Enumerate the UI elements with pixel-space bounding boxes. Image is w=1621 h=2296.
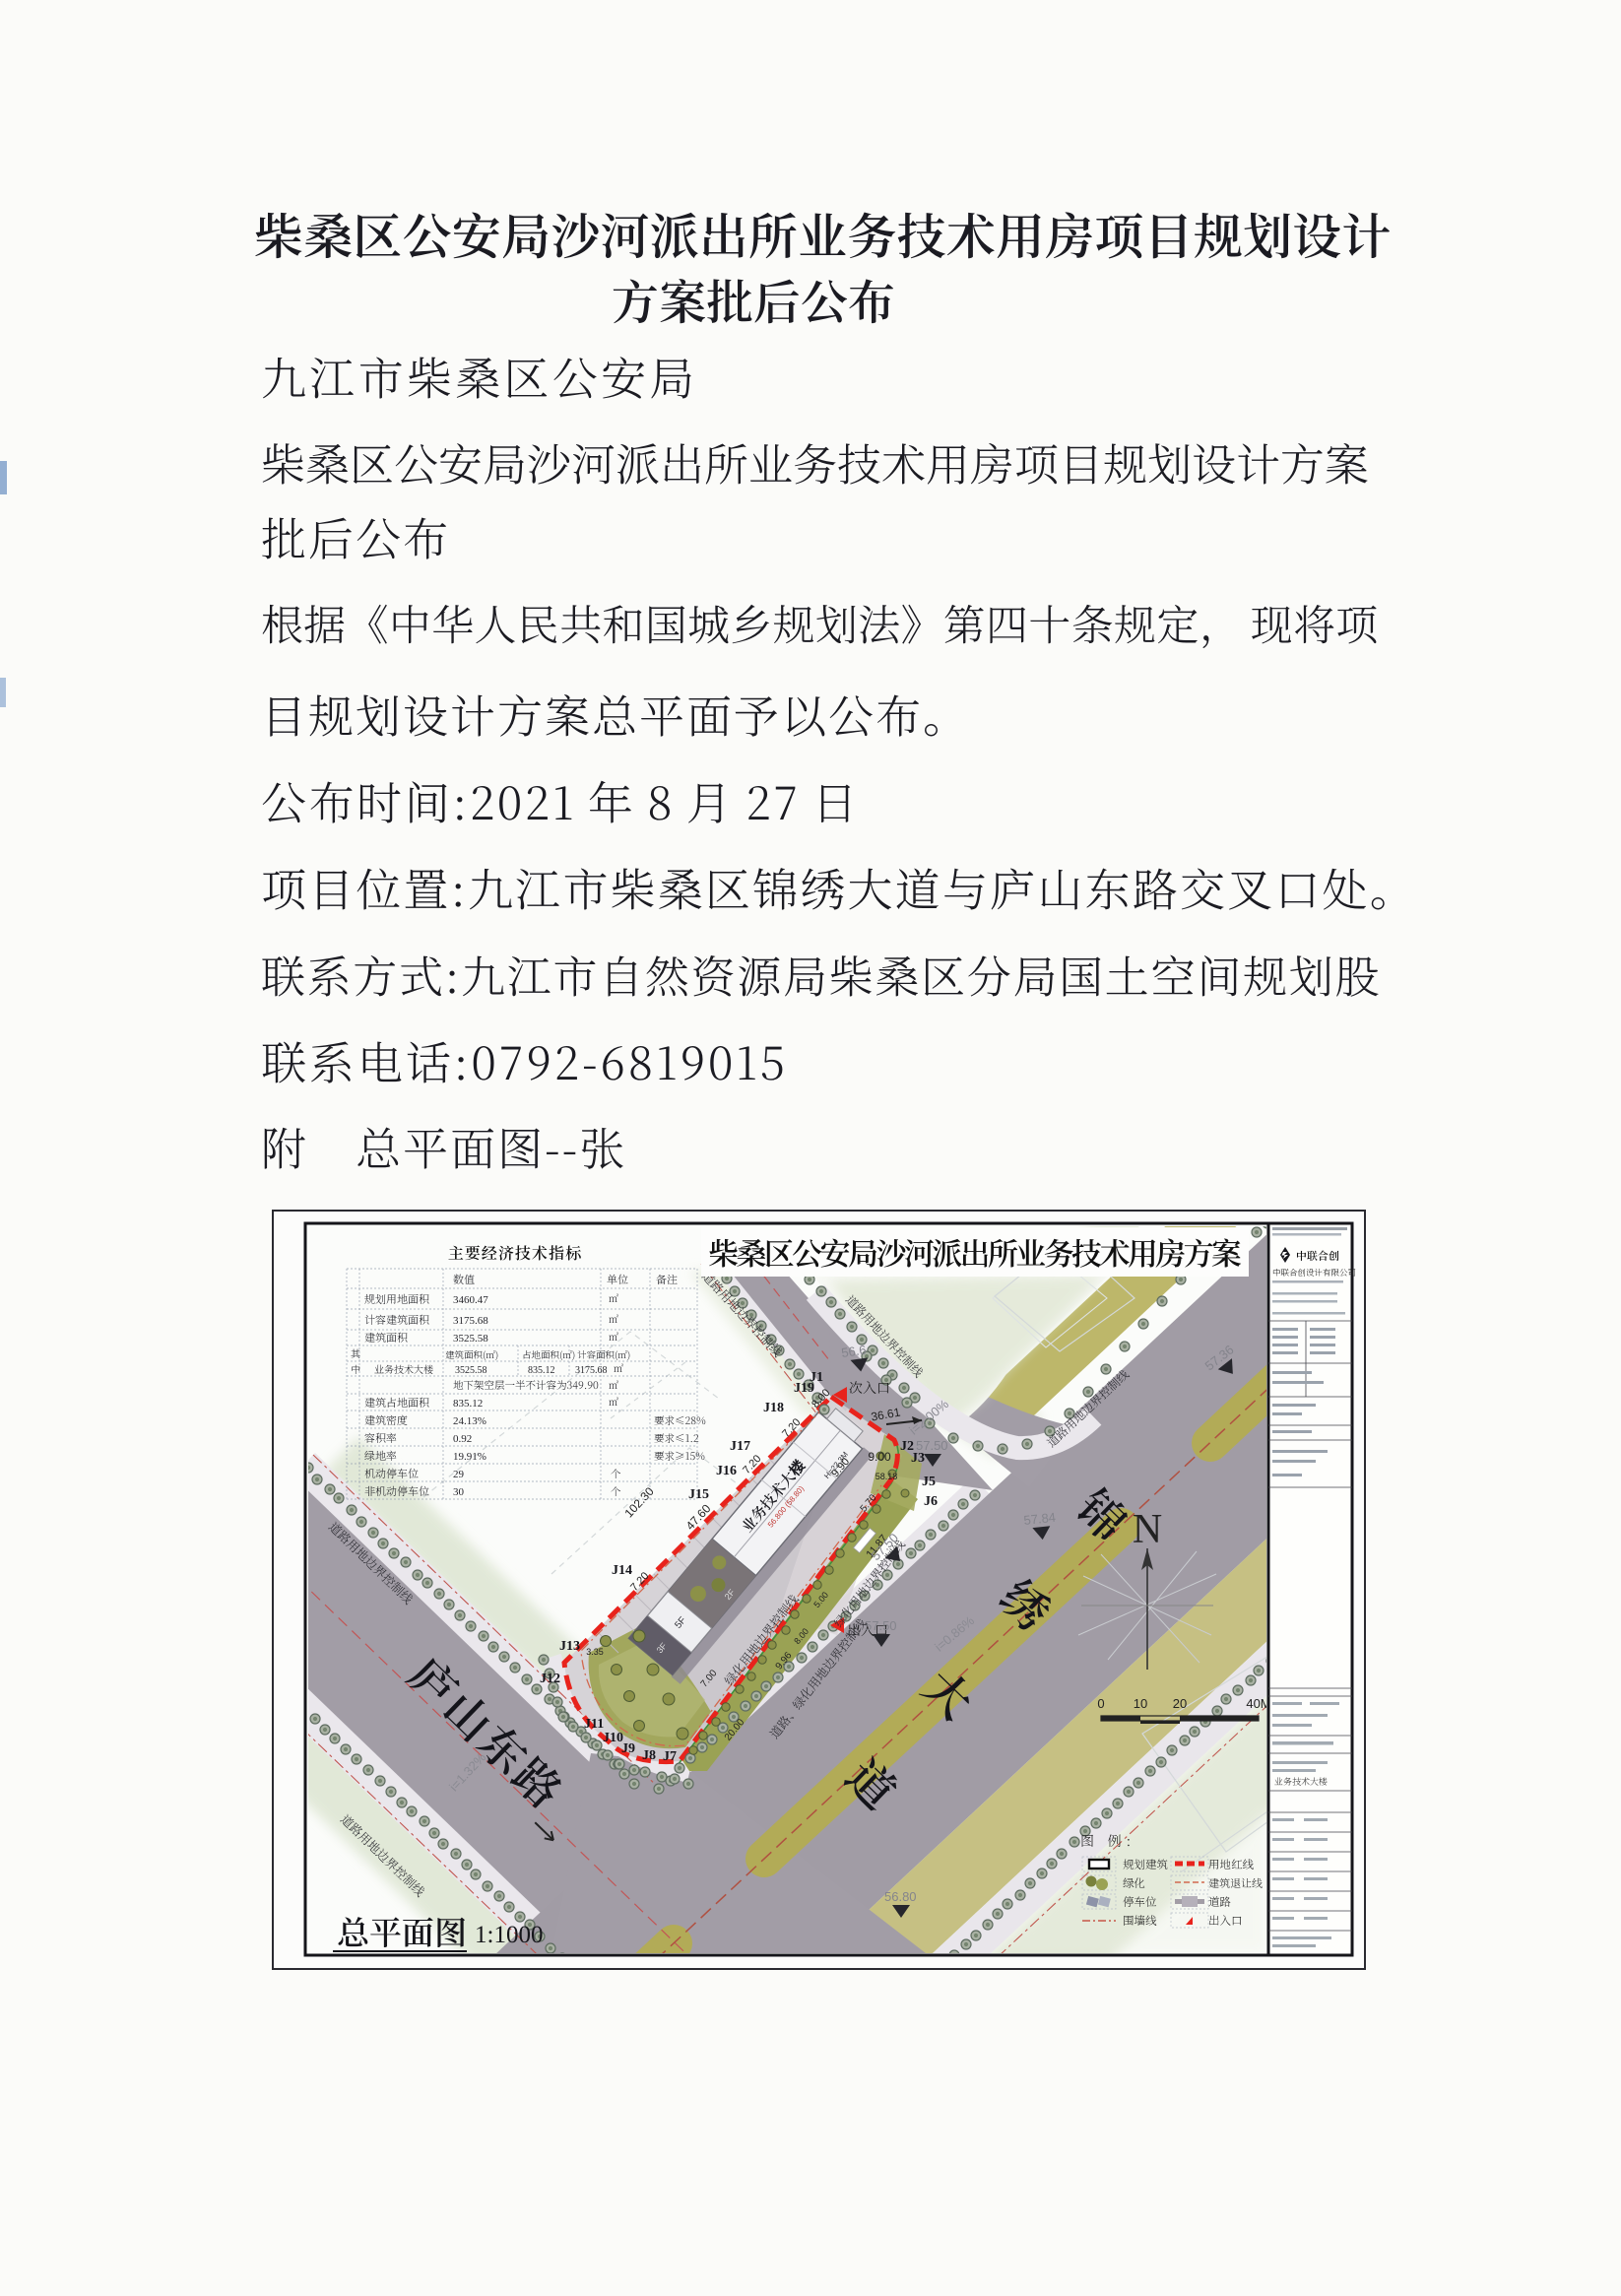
svg-text:24.13%: 24.13% — [453, 1415, 486, 1427]
svg-text:㎡: ㎡ — [609, 1290, 618, 1305]
svg-text:容积率: 容积率 — [364, 1430, 397, 1446]
svg-text:个: 个 — [611, 1467, 621, 1481]
svg-text:停车位: 停车位 — [1123, 1894, 1157, 1910]
svg-text:56.80: 56.80 — [884, 1889, 917, 1904]
svg-text:绿化: 绿化 — [1123, 1875, 1145, 1891]
svg-text:3.35: 3.35 — [586, 1647, 604, 1657]
svg-text:J7: J7 — [663, 1749, 677, 1764]
svg-text:0: 0 — [1097, 1696, 1104, 1711]
svg-text:20: 20 — [1173, 1696, 1187, 1711]
svg-text:道路: 道路 — [1208, 1894, 1231, 1910]
svg-text:围墙线: 围墙线 — [1123, 1913, 1157, 1929]
svg-text:计容建筑面积: 计容建筑面积 — [364, 1312, 429, 1328]
svg-text:规划建筑: 规划建筑 — [1123, 1857, 1168, 1872]
svg-text:数值: 数值 — [453, 1272, 475, 1287]
svg-text:J16: J16 — [716, 1464, 737, 1478]
svg-text:N: N — [1133, 1507, 1162, 1552]
svg-text:J12: J12 — [540, 1672, 560, 1686]
svg-text:J15: J15 — [688, 1487, 709, 1502]
svg-text:占地面积(㎡): 占地面积(㎡) — [522, 1347, 575, 1361]
svg-text:58.18: 58.18 — [875, 1472, 898, 1481]
svg-text:计容面积(㎡): 计容面积(㎡) — [577, 1347, 630, 1361]
svg-text:10: 10 — [1134, 1696, 1147, 1711]
svg-text:中联合创设计有限公司: 中联合创设计有限公司 — [1272, 1267, 1357, 1279]
svg-text:柴桑区公安局沙河派出所业务技术用房方案: 柴桑区公安局沙河派出所业务技术用房方案 — [708, 1229, 1242, 1274]
svg-text:㎡: ㎡ — [614, 1360, 623, 1375]
svg-text:835.12: 835.12 — [528, 1365, 555, 1376]
svg-text:3525.58: 3525.58 — [455, 1365, 487, 1376]
svg-text:出入口: 出入口 — [1208, 1913, 1243, 1929]
svg-text:J13: J13 — [559, 1639, 580, 1654]
svg-text:J6: J6 — [924, 1494, 938, 1509]
svg-text:3460.47: 3460.47 — [453, 1294, 488, 1306]
svg-text:建筑占地面积: 建筑占地面积 — [364, 1395, 429, 1410]
svg-text:J5: J5 — [922, 1475, 936, 1489]
svg-text:㎡: ㎡ — [609, 1377, 618, 1392]
svg-text:J11: J11 — [584, 1717, 604, 1732]
svg-text:建筑退让线: 建筑退让线 — [1208, 1875, 1263, 1891]
svg-text:主要经济技术指标: 主要经济技术指标 — [448, 1241, 582, 1264]
svg-text:㎡: ㎡ — [609, 1329, 618, 1344]
svg-text:3175.68: 3175.68 — [453, 1315, 488, 1327]
svg-text:地下架空层一半不计容为349.90: 地下架空层一半不计容为349.90 — [453, 1378, 599, 1393]
svg-text:㎡: ㎡ — [609, 1311, 618, 1326]
svg-text:单位: 单位 — [607, 1272, 628, 1287]
svg-text:30: 30 — [453, 1486, 465, 1498]
svg-text:规划用地面积: 规划用地面积 — [364, 1291, 429, 1307]
svg-text:J3: J3 — [911, 1451, 925, 1466]
svg-text:中: 中 — [351, 1361, 360, 1376]
svg-text:J17: J17 — [730, 1439, 750, 1454]
svg-text:建筑面积(㎡): 建筑面积(㎡) — [445, 1347, 498, 1361]
svg-text:835.12: 835.12 — [453, 1398, 483, 1410]
svg-text:非机动停车位: 非机动停车位 — [364, 1483, 429, 1499]
svg-text:用地红线: 用地红线 — [1208, 1857, 1254, 1872]
svg-text:要求≤1.2: 要求≤1.2 — [654, 1431, 699, 1446]
svg-text:3525.58: 3525.58 — [453, 1333, 488, 1345]
svg-text:㎡: ㎡ — [609, 1394, 618, 1409]
svg-text:建筑密度: 建筑密度 — [364, 1412, 408, 1428]
svg-text:总平面图: 总平面图 — [337, 1908, 467, 1954]
svg-text:J14: J14 — [612, 1563, 632, 1578]
svg-text:建筑面积: 建筑面积 — [364, 1330, 408, 1345]
svg-text:其: 其 — [351, 1345, 360, 1360]
svg-text:机动停车位: 机动停车位 — [364, 1466, 419, 1481]
svg-text:图 例:: 图 例: — [1080, 1831, 1135, 1851]
svg-text:9.00: 9.00 — [868, 1450, 891, 1464]
svg-text:个: 个 — [611, 1484, 621, 1499]
svg-text:次入口: 次入口 — [849, 1378, 890, 1398]
svg-text:J10: J10 — [603, 1731, 623, 1745]
svg-text:备注: 备注 — [656, 1272, 678, 1287]
svg-text:1:1000: 1:1000 — [475, 1922, 543, 1948]
svg-text:J19: J19 — [794, 1381, 814, 1396]
svg-text:29: 29 — [453, 1469, 465, 1480]
svg-text:57.50: 57.50 — [916, 1438, 948, 1453]
svg-text:J18: J18 — [763, 1401, 784, 1415]
svg-text:业务技术大楼: 业务技术大楼 — [1274, 1775, 1328, 1788]
svg-text:要求≥15%: 要求≥15% — [654, 1449, 705, 1464]
svg-text:绿地率: 绿地率 — [364, 1448, 397, 1464]
svg-text:要求≤28%: 要求≤28% — [654, 1413, 706, 1428]
svg-text:J8: J8 — [642, 1748, 656, 1763]
svg-text:J9: J9 — [621, 1741, 635, 1756]
svg-text:3175.68: 3175.68 — [575, 1365, 608, 1376]
svg-text:中联合创: 中联合创 — [1296, 1248, 1339, 1264]
svg-text:业务技术大楼: 业务技术大楼 — [374, 1361, 433, 1376]
svg-text:19.91%: 19.91% — [453, 1451, 486, 1463]
svg-text:0.92: 0.92 — [453, 1433, 472, 1445]
